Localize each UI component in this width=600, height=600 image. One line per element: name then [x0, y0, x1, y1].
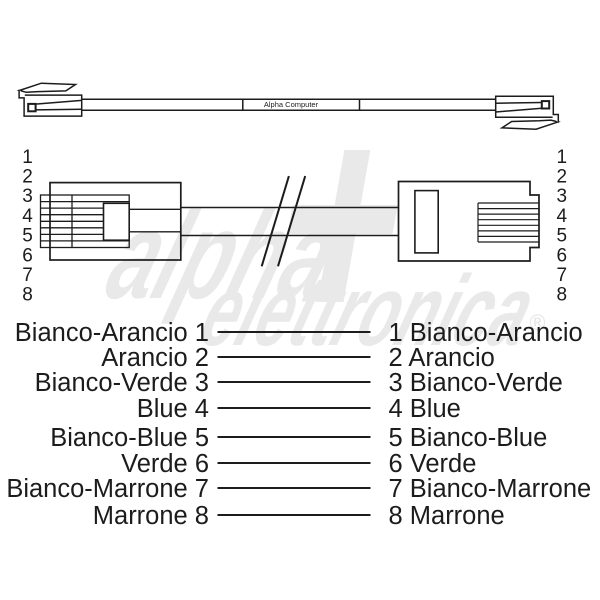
- svg-text:Alpha Computer: Alpha Computer: [264, 100, 319, 109]
- svg-text:Arancio 2: Arancio 2: [101, 344, 209, 372]
- svg-text:8: 8: [22, 285, 33, 306]
- svg-text:5: 5: [22, 226, 33, 247]
- svg-text:Bianco-Marrone 7: Bianco-Marrone 7: [6, 475, 209, 503]
- svg-text:1: 1: [557, 147, 568, 168]
- svg-text:4: 4: [22, 206, 33, 227]
- svg-text:5: 5: [557, 226, 568, 247]
- svg-text:7: 7: [557, 265, 568, 286]
- svg-text:2: 2: [22, 167, 33, 188]
- svg-text:8 Marrone: 8 Marrone: [389, 502, 505, 530]
- svg-text:Marrone 8: Marrone 8: [93, 502, 209, 530]
- svg-text:3: 3: [22, 186, 33, 207]
- svg-text:2 Arancio: 2 Arancio: [389, 344, 495, 372]
- svg-text:8: 8: [557, 285, 568, 306]
- svg-text:5 Bianco-Blue: 5 Bianco-Blue: [389, 424, 548, 452]
- svg-text:4 Blue: 4 Blue: [389, 395, 461, 423]
- svg-text:7: 7: [22, 265, 33, 286]
- svg-text:3: 3: [557, 186, 568, 207]
- svg-text:Bianco-Verde 3: Bianco-Verde 3: [35, 369, 209, 397]
- svg-text:7 Bianco-Marrone: 7 Bianco-Marrone: [389, 475, 592, 503]
- svg-text:3 Bianco-Verde: 3 Bianco-Verde: [389, 369, 563, 397]
- svg-text:2: 2: [557, 167, 568, 188]
- svg-text:4: 4: [557, 206, 568, 227]
- svg-text:Bianco-Blue 5: Bianco-Blue 5: [50, 424, 209, 452]
- svg-text:1: 1: [22, 147, 33, 168]
- svg-text:Bianco-Arancio 1: Bianco-Arancio 1: [15, 319, 209, 347]
- svg-text:6: 6: [22, 245, 33, 266]
- svg-text:6 Verde: 6 Verde: [389, 450, 477, 478]
- svg-text:Verde 6: Verde 6: [121, 450, 209, 478]
- svg-text:Blue 4: Blue 4: [137, 395, 209, 423]
- svg-text:1 Bianco-Arancio: 1 Bianco-Arancio: [389, 319, 583, 347]
- svg-text:6: 6: [557, 245, 568, 266]
